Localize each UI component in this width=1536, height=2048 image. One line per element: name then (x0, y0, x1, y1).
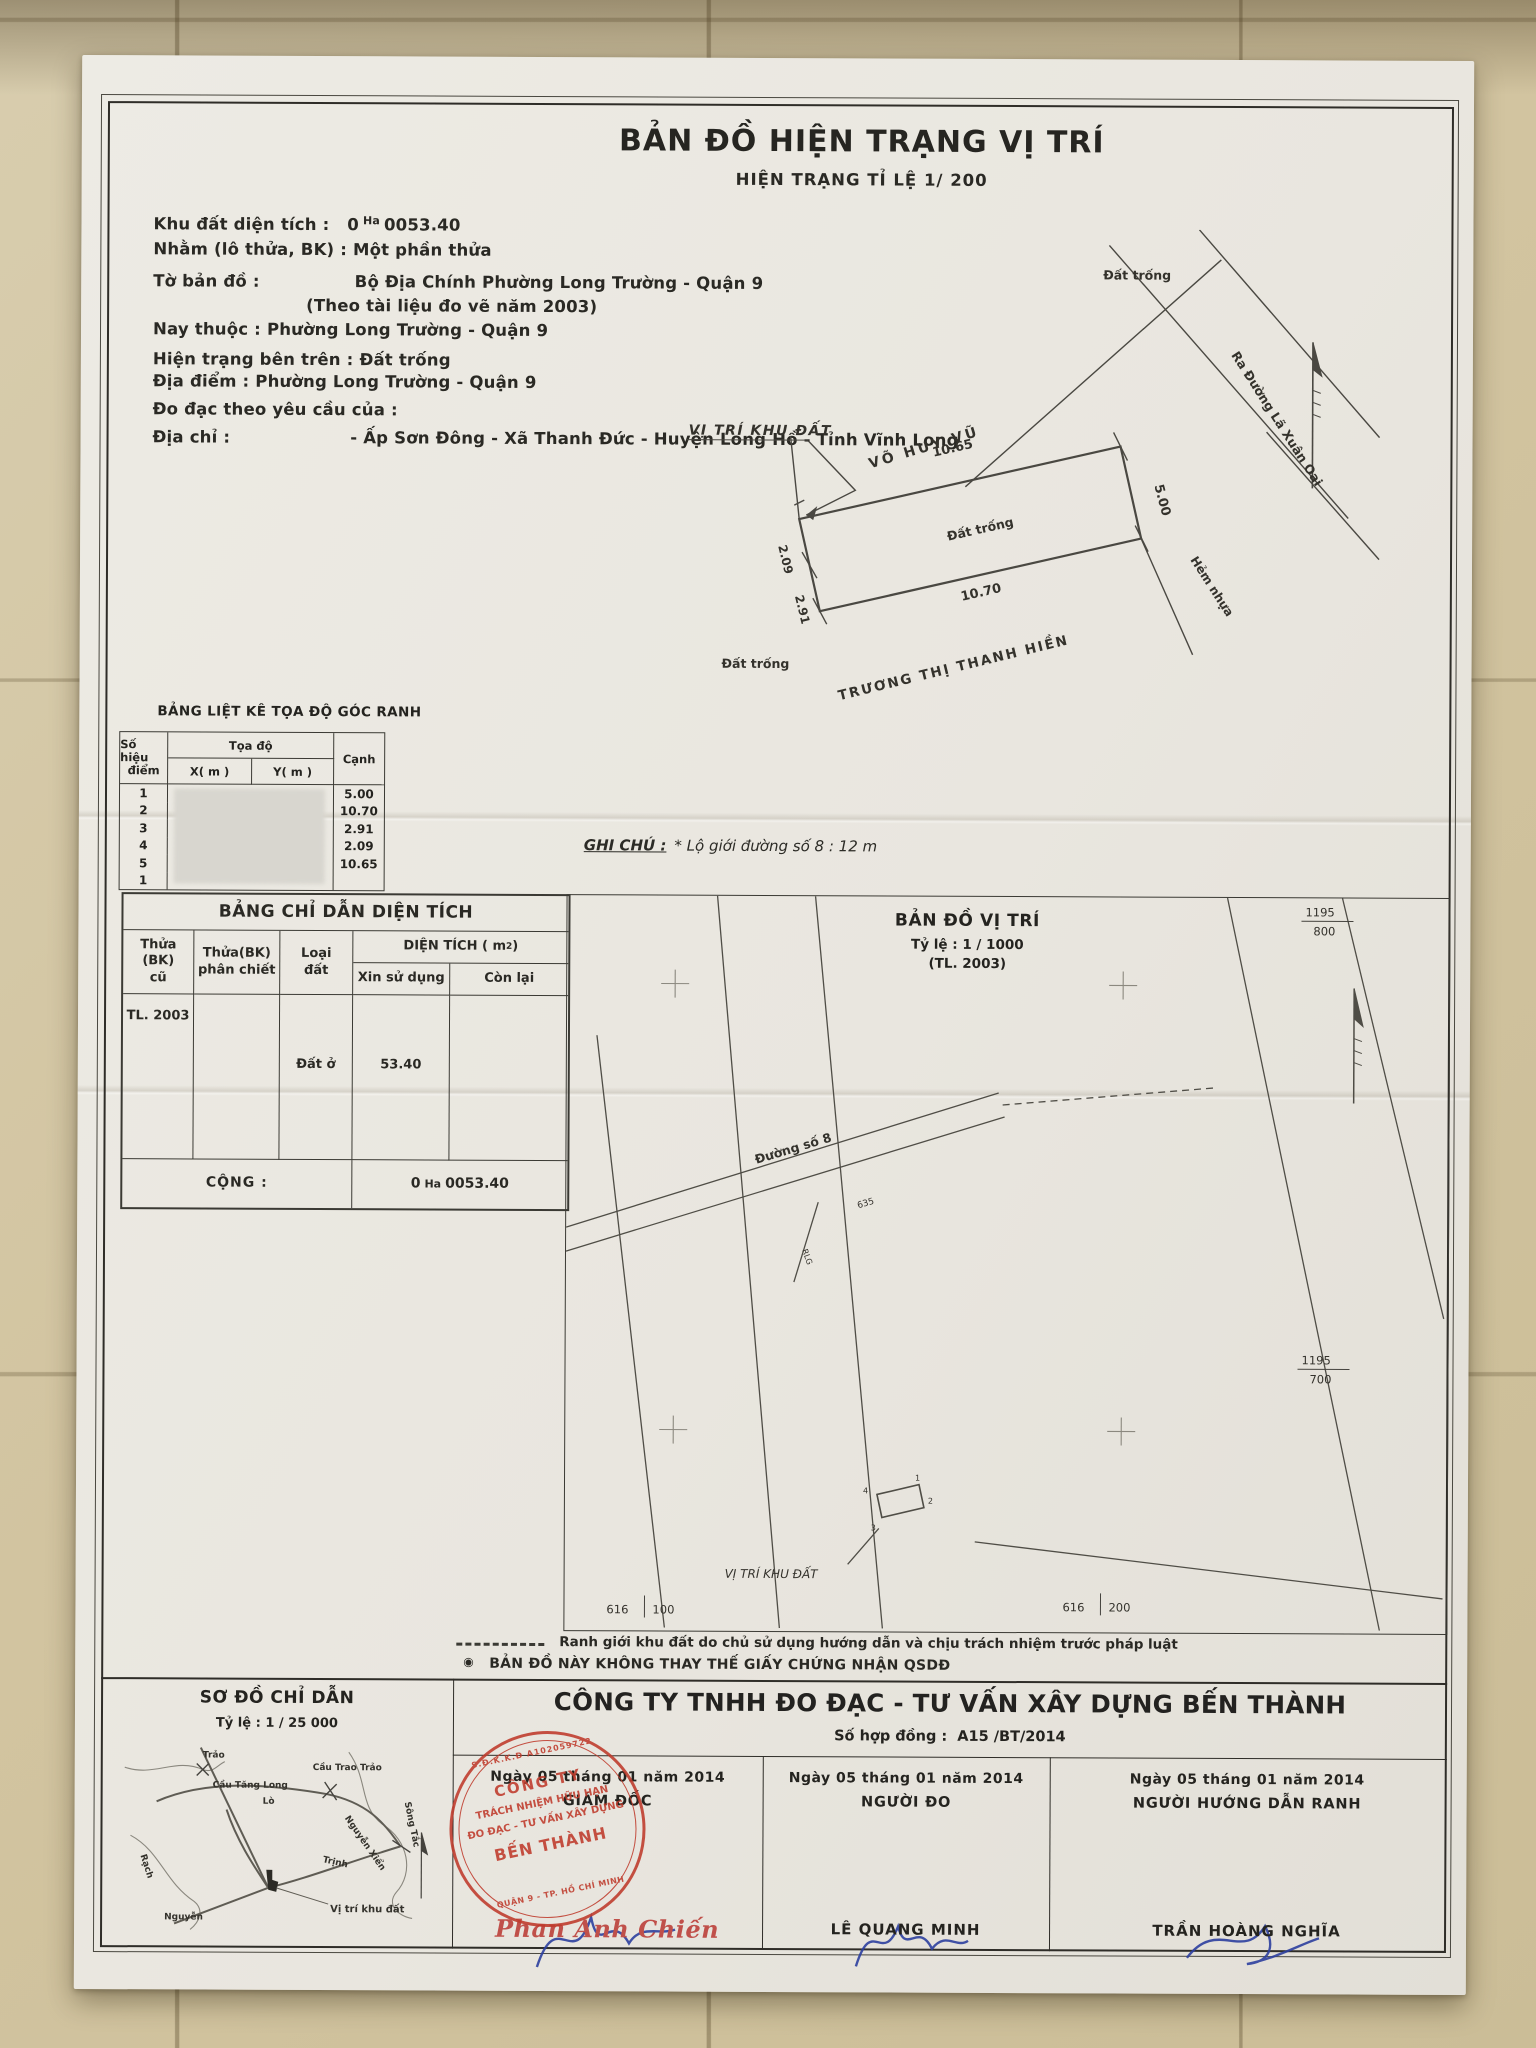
bullet-icon: ◉ (463, 1655, 474, 1669)
sketch-label: Sông Tắc (402, 1801, 422, 1848)
bridge-marks (196, 1763, 410, 1852)
sketch-title: SƠ ĐỒ CHỈ DẪN (101, 1687, 453, 1709)
footer: SƠ ĐỒ CHỈ DẪN Tỷ lệ : 1 / 25 000 (100, 1677, 1447, 1953)
map-title: BẢN ĐỒ VỊ TRÍ (567, 909, 1367, 932)
legend: Ranh giới khu đất do chủ sử dụng hướng d… (101, 1627, 1447, 1685)
signature (805, 1896, 1005, 1987)
north-arrow-icon (421, 1832, 427, 1898)
col-y: Y( m ) (252, 759, 334, 785)
col-area-remain: Còn lại (450, 964, 568, 997)
company-stamp: S.Đ.K.K.Đ A102059722 CÔNG TY TRÁCH NHIỆM… (432, 1713, 664, 1945)
dim-bottom: 10.70 (959, 581, 1002, 605)
location-map-panel: Đường số 8 635 RLG VỊ TRÍ KHU ĐẤT 1 2 3 … (563, 894, 1450, 1635)
sign-role: NGƯỜI ĐO (763, 1794, 1050, 1811)
sketch-label: Nguyễn (164, 1911, 203, 1922)
col-point: Số hiệuđiểm (120, 732, 168, 784)
point-number: 1 (120, 784, 168, 802)
field-area: Khu đất diện tích : 0Ha0053.40 (153, 213, 460, 234)
field-place: Địa điểm : Phường Long Trường - Quận 9 (153, 371, 537, 392)
sign-role: NGƯỜI HƯỚNG DẪN RANH (1050, 1795, 1445, 1813)
edge-value: 10.70 (334, 803, 384, 821)
site-plan-pointer-label: VỊ TRÍ KHU ĐẤT (689, 420, 832, 440)
photo-background: BẢN ĐỒ HIỆN TRẠNG VỊ TRÍ HIỆN TRẠNG TỈ L… (0, 0, 1536, 2048)
paper: BẢN ĐỒ HIỆN TRẠNG VỊ TRÍ HIỆN TRẠNG TỈ L… (74, 55, 1474, 1995)
sketch-label: Cầu Tăng Long (213, 1780, 288, 1791)
edge-value: 10.65 (334, 855, 384, 873)
field-now: Nay thuộc : Phường Long Trường - Quận 9 (153, 319, 548, 340)
north-arrow-icon (1354, 989, 1364, 1104)
coord-table: Số hiệuđiểm Tọa độ X( m ) Y( m ) Cạnh 1 … (119, 731, 386, 891)
sign-col-boundary-guide: Ngày 05 tháng 01 năm 2014 NGƯỜI HƯỚNG DẪ… (1049, 1757, 1445, 1953)
dim-right: 5.00 (1150, 483, 1173, 518)
edge-value (334, 873, 384, 891)
cell-area-remain (449, 996, 568, 1162)
col-x: X( m ) (168, 758, 252, 784)
cell-split-parcel (193, 994, 280, 1159)
road-label: Ra Đường Lã Xuân Oai (1228, 348, 1325, 488)
cell-old-parcel: TL. 2003 (122, 994, 194, 1159)
legend-line2: BẢN ĐỒ NÀY KHÔNG THAY THẾ GIẤY CHỨNG NHẬ… (489, 1656, 950, 1674)
sketch-pointer-label: Vị trí khu đất (330, 1902, 405, 1915)
signature (1146, 1898, 1346, 1989)
sign-col-surveyor: Ngày 05 tháng 01 năm 2014 NGƯỜI ĐO LÊ QU… (762, 1756, 1050, 1951)
total-label: CỘNG : (122, 1159, 352, 1208)
sketch-label: Lò (263, 1796, 275, 1807)
svg-text:100: 100 (652, 1602, 674, 1616)
redacted-coordinates (168, 784, 334, 890)
col-split-parcel: Thửa(BK)phân chiết (194, 930, 280, 994)
field-request: Đo đạc theo yêu cầu của : (153, 399, 398, 419)
signer-name: LÊ QUANG MINH (762, 1920, 1049, 1939)
total-value: 0Ha0053.40 (352, 1160, 567, 1209)
cell-land-type: Đất ở (279, 995, 353, 1160)
map-road-note: 635 (856, 1197, 875, 1212)
area-table: BẢNG CHỈ DẪN DIỆN TÍCH Thửa (BK)cũ Thửa(… (120, 892, 570, 1211)
sketch-box: SƠ ĐỒ CHỈ DẪN Tỷ lệ : 1 / 25 000 (100, 1677, 454, 1949)
col-old-parcel: Thửa (BK)cũ (123, 930, 194, 994)
col-coord: Tọa độ (168, 732, 334, 759)
dim-left-lower: 2.91 (792, 593, 813, 625)
alley-label: Hẻm nhựa (1188, 554, 1237, 619)
note: GHI CHÚ :* Lộ giới đường số 8 : 12 m (584, 836, 877, 855)
sketch-scale: Tỷ lệ : 1 / 25 000 (101, 1715, 453, 1732)
corner-number: 2 (928, 1497, 933, 1506)
location-map-drawing: Đường số 8 635 RLG VỊ TRÍ KHU ĐẤT 1 2 3 … (564, 895, 1446, 1631)
map-scale: Tỷ lệ : 1 / 1000 (567, 935, 1367, 954)
corner-number: 1 (915, 1474, 920, 1483)
svg-text:1195: 1195 (1302, 1353, 1331, 1367)
col-land-type: Loạiđất (280, 931, 353, 995)
sign-date: Ngày 05 tháng 01 năm 2014 (1050, 1771, 1445, 1789)
legend-line1: Ranh giới khu đất do chủ sử dụng hướng d… (559, 1634, 1178, 1653)
edge-value: 5.00 (334, 785, 384, 803)
col-area: DIỆN TÍCH ( m2 ) (353, 931, 568, 964)
col-area-use: Xin sử dụng (353, 963, 450, 995)
svg-text:200: 200 (1108, 1600, 1130, 1614)
col-edge: Cạnh (334, 733, 384, 785)
dim-left-upper: 2.09 (775, 543, 796, 575)
empty-land-label: Đất trống (945, 514, 1014, 544)
point-number: 1 (120, 872, 168, 890)
point-number: 4 (120, 837, 168, 855)
page-subtitle: HIỆN TRẠNG TỈ LỆ 1/ 200 (562, 169, 1162, 191)
map-pointer-label: VỊ TRÍ KHU ĐẤT (725, 1565, 820, 1581)
svg-text:700: 700 (1309, 1372, 1331, 1386)
owner-bottom-label: TRƯƠNG THỊ THANH HIỀN (836, 629, 1071, 704)
page-title: BẢN ĐỒ HIỆN TRẠNG VỊ TRÍ (562, 123, 1162, 161)
coord-table-title: BẢNG LIỆT KÊ TỌA ĐỘ GÓC RANH (157, 703, 421, 720)
svg-text:616: 616 (1062, 1600, 1084, 1614)
sketch-label: Cầu Trao Trảo (313, 1762, 382, 1773)
cell-area-use: 53.40 (352, 995, 450, 1160)
point-number: 3 (120, 819, 168, 837)
edge-value: 2.91 (334, 820, 384, 838)
signer-name: TRẦN HOÀNG NGHĨA (1049, 1921, 1444, 1941)
company-name: CÔNG TY TNHH ĐO ĐẠC - TƯ VẤN XÂY DỰNG BẾ… (453, 1687, 1447, 1720)
edge-value: 2.09 (334, 838, 384, 856)
corner-number: 4 (863, 1486, 868, 1495)
map-title-block: BẢN ĐỒ VỊ TRÍ Tỷ lệ : 1 / 1000 (TL. 2003… (567, 909, 1367, 973)
site-plan-drawing: VỊ TRÍ KHU ĐẤT VÕ HUY VŨ 10.65 5.00 10.7… (549, 227, 1382, 806)
sketch-label: Trảo (203, 1750, 225, 1761)
sketch-label: Rạch (138, 1853, 155, 1880)
grid-cross-icons (659, 970, 1137, 1446)
grid-reference-labels: 1195 800 1195 700 616 100 616 200 (606, 902, 1353, 1620)
sign-date: Ngày 05 tháng 01 năm 2014 (763, 1770, 1050, 1787)
field-lot: Nhằm (lô thửa, BK) : Một phần thửa (153, 239, 491, 259)
sketch-map-drawing: Trảo Cầu Tăng Long Cầu Trao Trảo Sông Tắ… (116, 1739, 439, 1940)
svg-text:616: 616 (606, 1602, 628, 1616)
point-number: 5 (120, 854, 168, 872)
empty-land-label: Đất trống (722, 656, 790, 671)
dashed-line-symbol (456, 1643, 544, 1646)
area-table-title: BẢNG CHỈ DẪN DIỆN TÍCH (123, 894, 568, 932)
empty-land-label: Đất trống (1103, 267, 1171, 282)
corner-number: 3 (871, 1523, 876, 1532)
field-status: Hiện trạng bên trên : Đất trống (153, 349, 451, 369)
point-number: 2 (120, 802, 168, 820)
